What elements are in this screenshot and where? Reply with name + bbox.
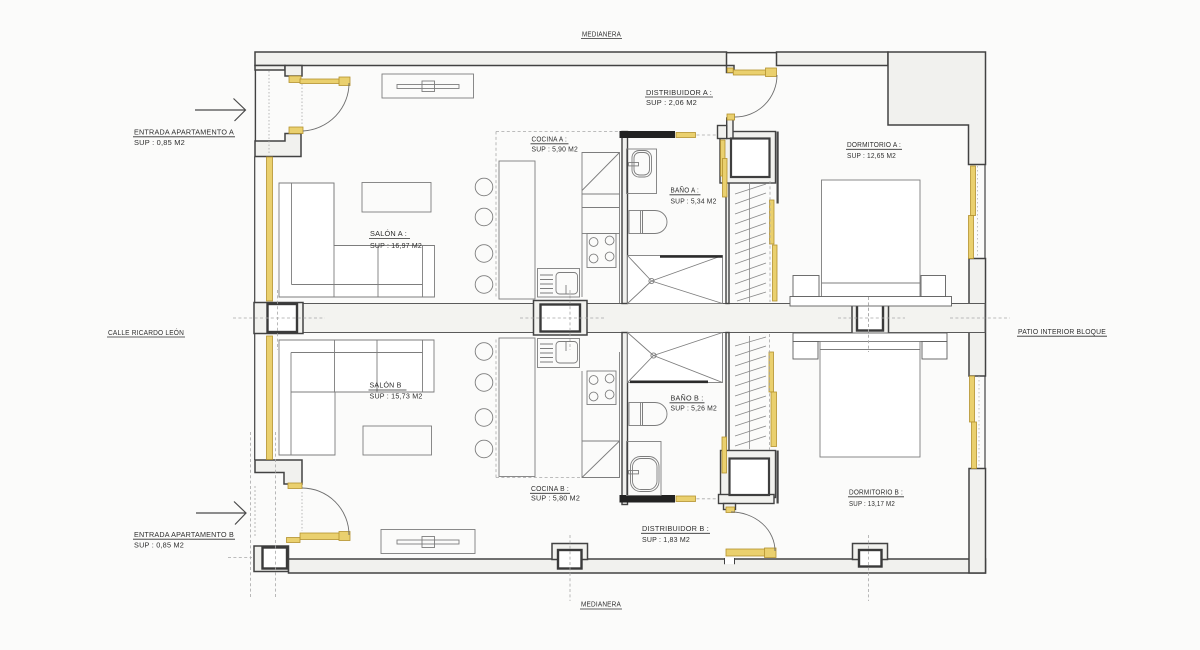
svg-text:MEDIANERA: MEDIANERA xyxy=(582,31,621,38)
svg-text:PATIO INTERIOR BLOQUE: PATIO INTERIOR BLOQUE xyxy=(1018,329,1106,336)
svg-text:SUP : 15,73 M2: SUP : 15,73 M2 xyxy=(370,394,423,401)
svg-text:DORMITORIO B :: DORMITORIO B : xyxy=(849,490,903,497)
svg-text:SALÓN B: SALÓN B xyxy=(370,381,402,390)
svg-text:BAÑO B :: BAÑO B : xyxy=(671,394,704,403)
svg-text:DORMITORIO A :: DORMITORIO A : xyxy=(847,142,901,149)
svg-text:SUP : 1,83 M2: SUP : 1,83 M2 xyxy=(642,537,690,544)
svg-text:SUP : 5,90 M2: SUP : 5,90 M2 xyxy=(532,147,579,154)
svg-text:COCINA B :: COCINA B : xyxy=(531,486,569,493)
svg-text:SUP : 13,17 M2: SUP : 13,17 M2 xyxy=(849,501,895,508)
svg-text:DISTRIBUIDOR B :: DISTRIBUIDOR B : xyxy=(642,526,709,533)
svg-text:SUP : 16,97 M2: SUP : 16,97 M2 xyxy=(370,243,422,250)
svg-text:SUP : 5,80 M2: SUP : 5,80 M2 xyxy=(531,496,580,503)
svg-text:MEDIANERA: MEDIANERA xyxy=(581,602,621,609)
svg-text:SUP : 5,26 M2: SUP : 5,26 M2 xyxy=(671,406,718,413)
svg-text:SUP : 0,85 M2: SUP : 0,85 M2 xyxy=(134,140,185,147)
svg-text:SUP : 2,06 M2: SUP : 2,06 M2 xyxy=(646,100,697,107)
svg-text:COCINA A :: COCINA A : xyxy=(532,137,568,144)
svg-text:SUP : 0,85 M2: SUP : 0,85 M2 xyxy=(134,543,184,550)
svg-text:CALLE RICARDO LEÓN: CALLE RICARDO LEÓN xyxy=(108,328,184,337)
svg-text:ENTRADA APARTAMENTO A: ENTRADA APARTAMENTO A xyxy=(134,130,234,137)
svg-text:BAÑO A :: BAÑO A : xyxy=(671,186,700,195)
svg-text:ENTRADA APARTAMENTO B: ENTRADA APARTAMENTO B xyxy=(134,532,234,539)
svg-text:DISTRIBUIDOR A :: DISTRIBUIDOR A : xyxy=(646,90,712,97)
svg-text:SALÓN A :: SALÓN A : xyxy=(370,229,407,238)
svg-text:SUP : 5,34 M2: SUP : 5,34 M2 xyxy=(671,199,717,206)
svg-text:SUP : 12,65 M2: SUP : 12,65 M2 xyxy=(847,153,896,160)
